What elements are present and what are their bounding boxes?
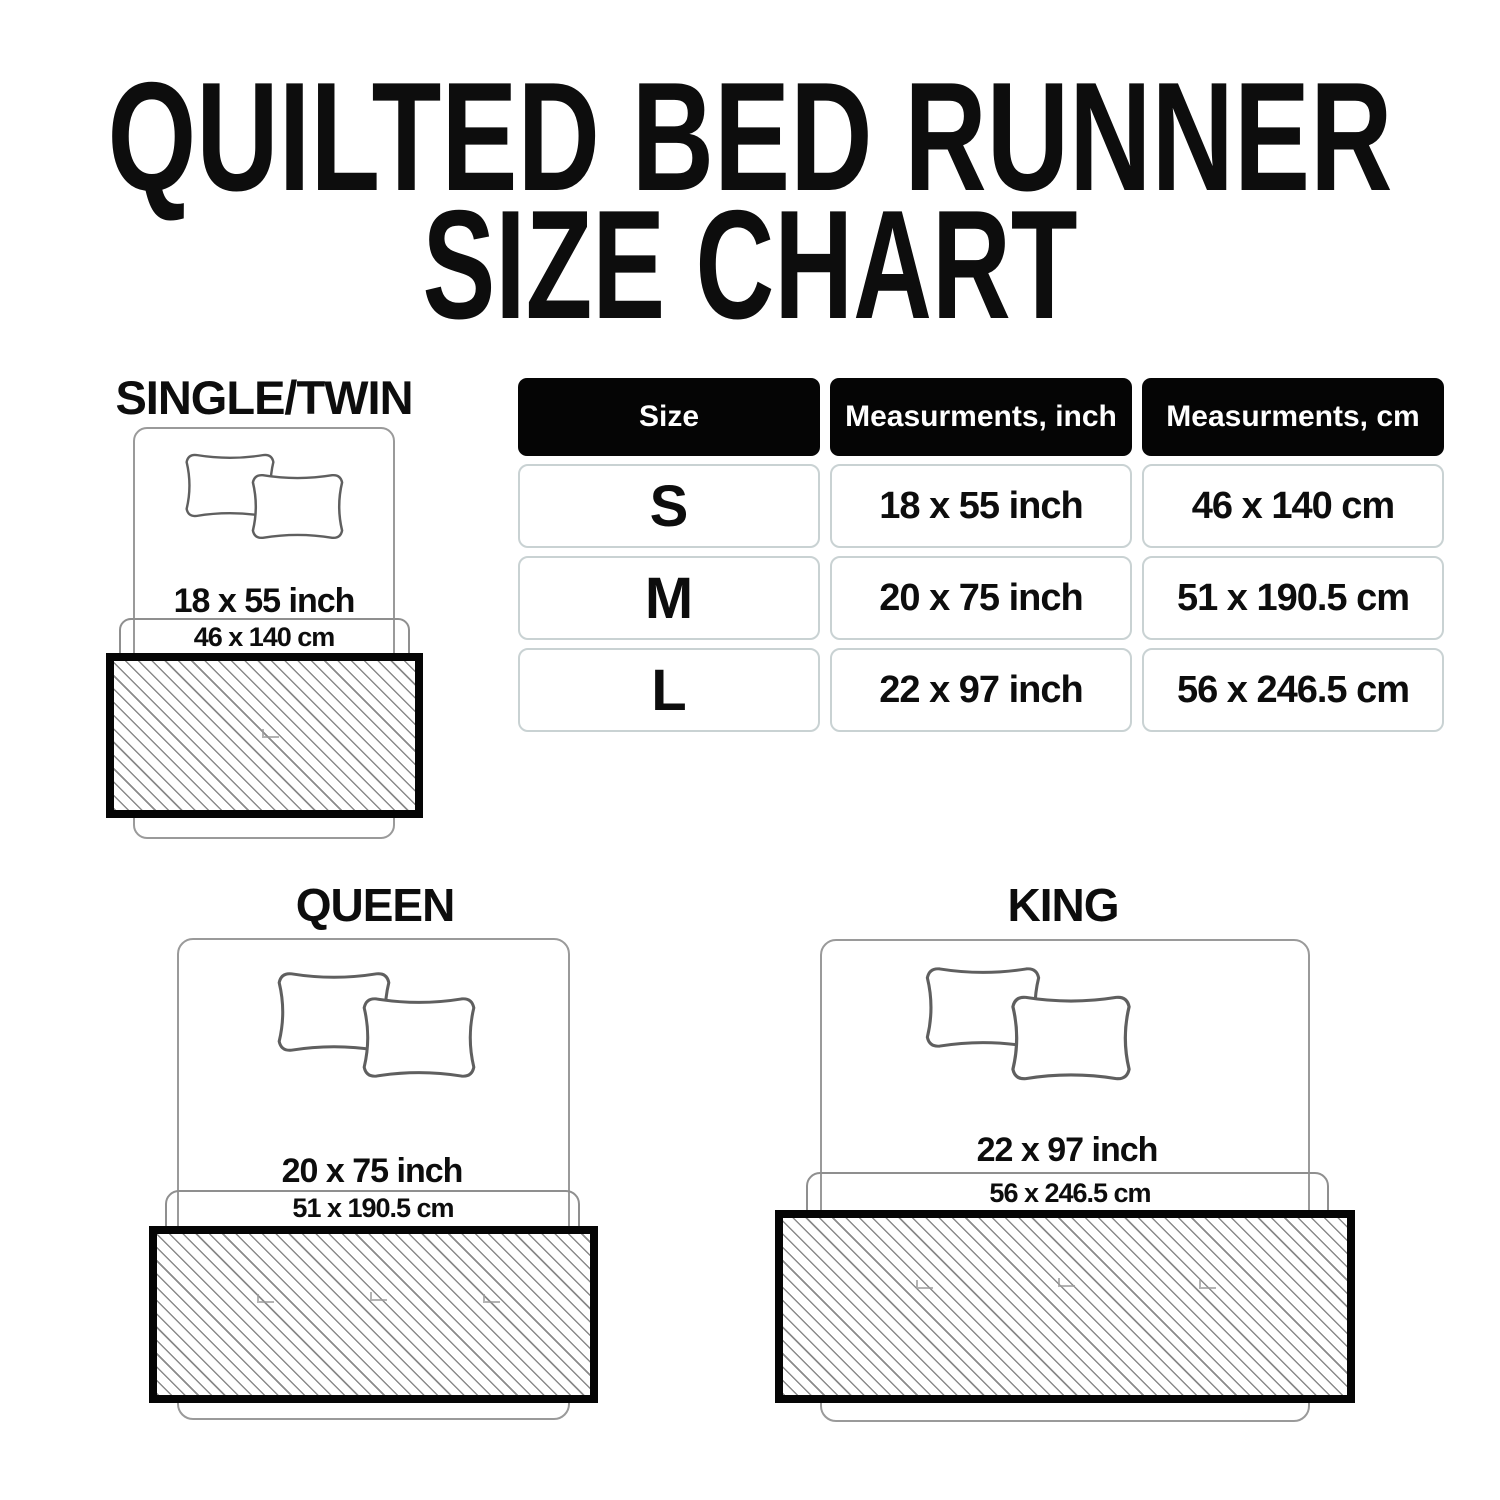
queen-label: QUEEN (195, 878, 555, 932)
page-title: QUILTED BED RUNNER SIZE CHART (0, 0, 1500, 340)
cell-cm-m: 51 x 190.5 cm (1142, 556, 1444, 640)
stitch-mark (916, 1280, 933, 1289)
king-cm-label: 56 x 246.5 cm (920, 1178, 1220, 1209)
cell-size-m: M (518, 556, 820, 640)
pillow-front-shape (1000, 988, 1142, 1088)
stitch-mark (257, 1294, 274, 1303)
bed-runner-hatched (775, 1210, 1355, 1403)
stitch-mark (370, 1292, 387, 1301)
table-header-size: Size (518, 378, 820, 456)
single-twin-inch-label: 18 x 55 inch (114, 582, 414, 621)
cell-inch-s: 18 x 55 inch (830, 464, 1132, 548)
table-header-inch: Measurments, inch (830, 378, 1132, 456)
bed-runner-hatched (106, 653, 423, 818)
queen-cm-label: 51 x 190.5 cm (223, 1193, 523, 1224)
stitch-mark (1058, 1278, 1075, 1287)
king-label: KING (883, 878, 1243, 932)
pillow-front-shape (243, 468, 352, 545)
king-inch-label: 22 x 97 inch (917, 1131, 1217, 1170)
single-twin-label: SINGLE/TWIN (84, 370, 444, 425)
cell-size-l: L (518, 648, 820, 732)
cell-inch-l: 22 x 97 inch (830, 648, 1132, 732)
stitch-mark (1199, 1280, 1216, 1289)
cell-size-s: S (518, 464, 820, 548)
page-title-line2: SIZE CHART (423, 178, 1078, 340)
queen-inch-label: 20 x 75 inch (222, 1152, 522, 1191)
cell-cm-l: 56 x 246.5 cm (1142, 648, 1444, 732)
table-header-cm: Measurments, cm (1142, 378, 1444, 456)
cell-inch-m: 20 x 75 inch (830, 556, 1132, 640)
single-twin-cm-label: 46 x 140 cm (114, 622, 414, 653)
size-table: Size Measurments, inch Measurments, cm S… (518, 378, 1444, 732)
quilted-bed-runner-size-chart: QUILTED BED RUNNER SIZE CHART SINGLE/TWI… (0, 0, 1500, 1500)
stitch-mark (262, 729, 279, 738)
stitch-mark (483, 1294, 500, 1303)
pillow-front-shape (352, 990, 486, 1085)
cell-cm-s: 46 x 140 cm (1142, 464, 1444, 548)
bed-runner-hatched (149, 1226, 598, 1403)
